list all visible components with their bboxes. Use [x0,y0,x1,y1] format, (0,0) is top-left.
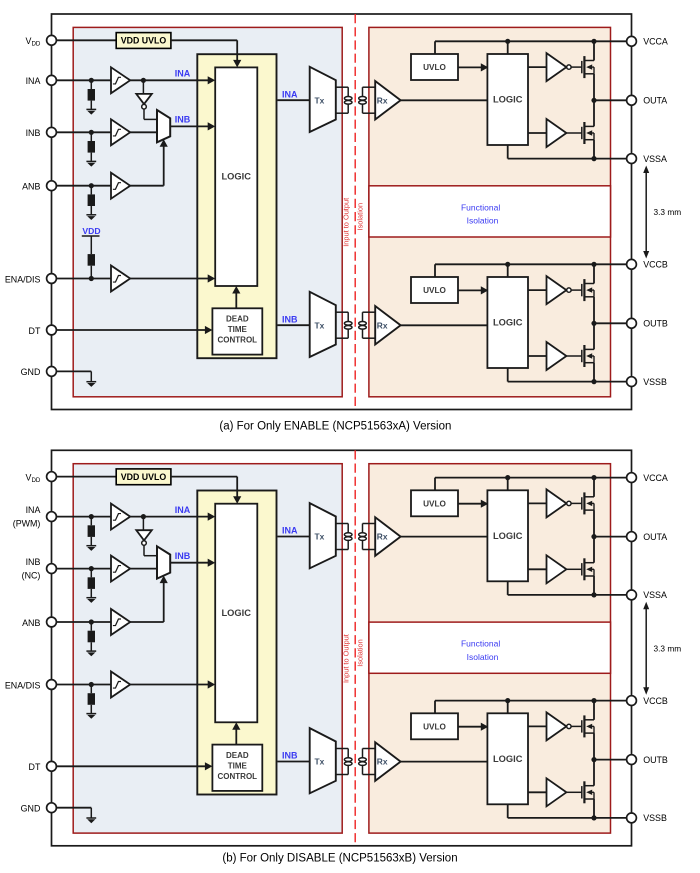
svg-text:DEAD: DEAD [226,315,249,324]
svg-text:UVLO: UVLO [423,63,446,72]
svg-text:ENA/DIS: ENA/DIS [5,680,41,690]
svg-text:LOGIC: LOGIC [221,608,251,618]
svg-text:LOGIC: LOGIC [493,754,523,764]
svg-text:UVLO: UVLO [423,500,446,509]
svg-text:VCCB: VCCB [643,260,668,270]
svg-text:ANB: ANB [22,618,40,628]
svg-text:Tx: Tx [315,320,325,330]
svg-text:LOGIC: LOGIC [493,95,523,105]
svg-text:Rx: Rx [377,95,388,105]
svg-text:CONTROL: CONTROL [218,772,258,781]
svg-text:Isolation: Isolation [356,203,365,231]
svg-text:Rx: Rx [377,532,388,542]
svg-text:CONTROL: CONTROL [218,336,258,345]
svg-text:INB: INB [282,314,298,324]
svg-text:VSSA: VSSA [643,590,667,600]
svg-text:INB: INB [26,128,41,138]
svg-text:OUTA: OUTA [643,96,667,106]
svg-text:Input to Output: Input to Output [341,634,350,683]
svg-text:Functional: Functional [461,202,500,212]
svg-text:UVLO: UVLO [423,286,446,295]
svg-text:VDD: VDD [82,226,100,236]
svg-text:OUTB: OUTB [643,755,668,765]
svg-text:INB: INB [282,751,298,761]
svg-text:VCCB: VCCB [643,696,668,706]
svg-text:INA: INA [175,505,191,515]
svg-text:OUTA: OUTA [643,532,667,542]
svg-text:LOGIC: LOGIC [221,172,251,182]
svg-text:INA: INA [282,526,298,536]
svg-text:TIME: TIME [228,325,248,334]
svg-text:INA: INA [282,89,298,99]
svg-text:VDD UVLO: VDD UVLO [121,36,167,46]
svg-text:TIME: TIME [228,761,248,770]
svg-text:Rx: Rx [377,320,388,330]
svg-text:(PWM): (PWM) [13,518,41,528]
svg-text:(NC): (NC) [22,570,41,580]
svg-text:ANB: ANB [22,182,40,192]
svg-text:LOGIC: LOGIC [493,531,523,541]
svg-text:VCCA: VCCA [643,473,668,483]
svg-text:INB: INB [175,115,191,125]
svg-text:Rx: Rx [377,757,388,767]
svg-text:VSSA: VSSA [643,154,667,164]
svg-text:(a) For Only ENABLE (NCP51563x: (a) For Only ENABLE (NCP51563xA) Version [219,421,451,433]
svg-text:Isolation: Isolation [356,639,365,667]
svg-text:DT: DT [29,326,41,336]
svg-text:3.3 mm: 3.3 mm [654,207,682,217]
svg-text:INA: INA [26,505,41,515]
svg-text:INB: INB [26,557,41,567]
svg-text:INA: INA [26,76,41,86]
svg-text:Isolation: Isolation [467,216,499,226]
svg-text:(b) For Only DISABLE (NCP51563: (b) For Only DISABLE (NCP51563xB) Versio… [222,853,457,865]
svg-text:VSSB: VSSB [643,377,667,387]
svg-text:INB: INB [175,551,191,561]
svg-text:Tx: Tx [315,532,325,542]
svg-text:Tx: Tx [315,95,325,105]
svg-text:Input to Output: Input to Output [341,198,350,247]
svg-text:DT: DT [29,762,41,772]
svg-text:UVLO: UVLO [423,723,446,732]
svg-text:VSSB: VSSB [643,813,667,823]
svg-text:ENA/DIS: ENA/DIS [5,274,41,284]
svg-text:INA: INA [175,69,191,79]
svg-text:DEAD: DEAD [226,751,249,760]
svg-text:Tx: Tx [315,757,325,767]
svg-text:Functional: Functional [461,639,500,649]
svg-text:VCCA: VCCA [643,37,668,47]
svg-text:GND: GND [21,804,41,814]
svg-text:GND: GND [21,367,41,377]
svg-text:3.3 mm: 3.3 mm [654,643,682,653]
svg-text:LOGIC: LOGIC [493,318,523,328]
svg-text:Isolation: Isolation [467,652,499,662]
svg-text:OUTB: OUTB [643,319,668,329]
svg-text:VDD UVLO: VDD UVLO [121,472,167,482]
